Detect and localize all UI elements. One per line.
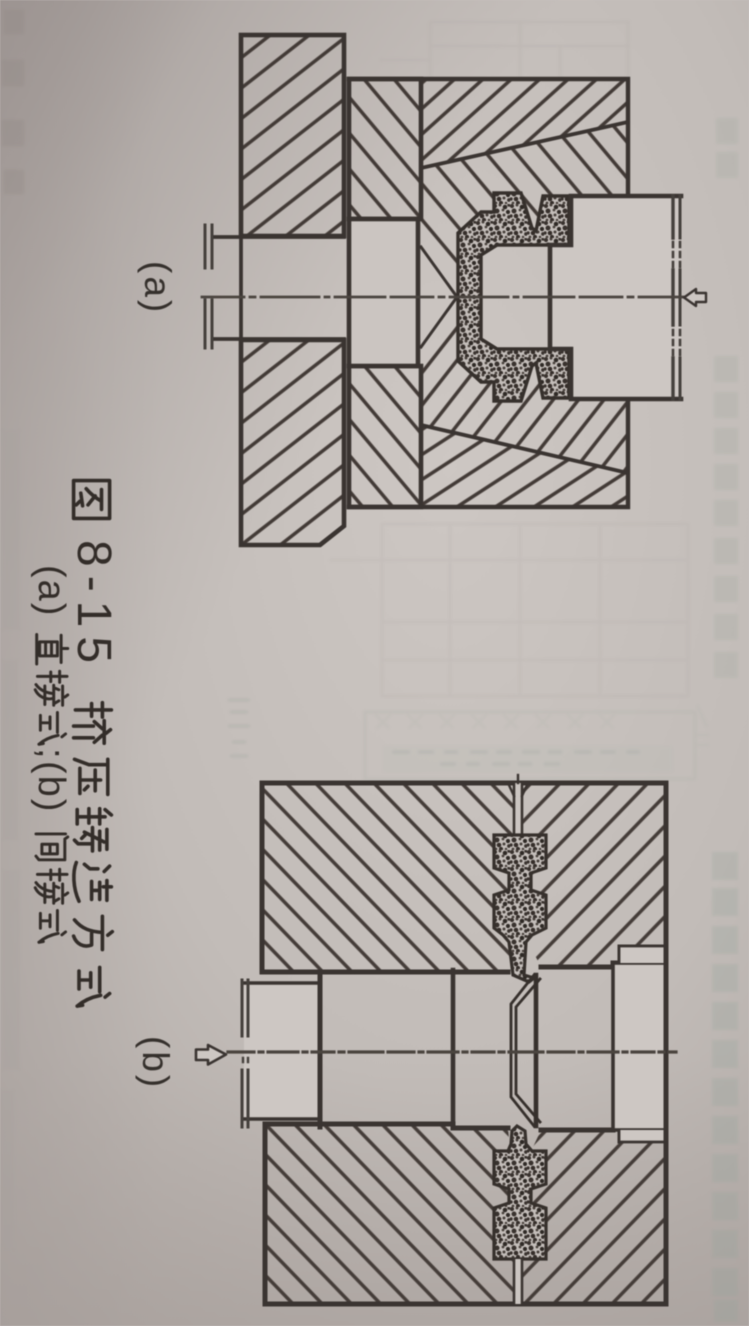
svg-text:(b): (b) (135, 1036, 176, 1090)
svg-text:;: ; (30, 748, 72, 759)
svg-text:8-15: 8-15 (67, 540, 120, 672)
svg-text:(a): (a) (137, 261, 178, 315)
svg-text:(b): (b) (30, 761, 72, 813)
svg-text:(a): (a) (30, 565, 72, 617)
